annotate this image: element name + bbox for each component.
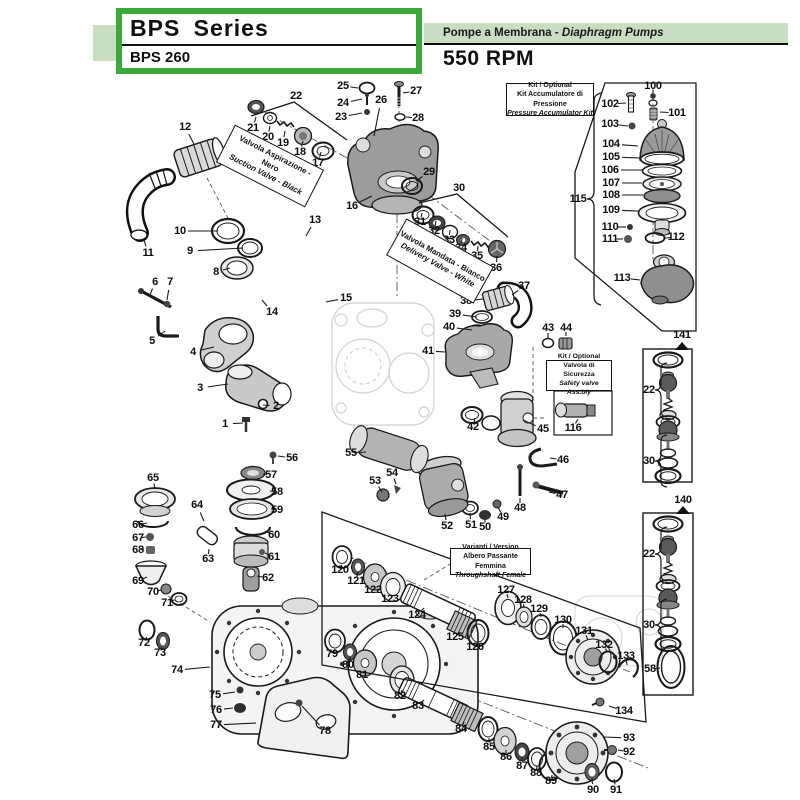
callout-86: 86 xyxy=(500,751,512,763)
callout-43: 43 xyxy=(542,322,554,334)
leader-line-13 xyxy=(306,227,311,236)
leader-line-101 xyxy=(660,112,669,113)
throughshaft-variant-label: Varianti / Version Albero Passante Femmi… xyxy=(450,548,531,575)
leader-line-11 xyxy=(144,240,146,247)
callout-11: 11 xyxy=(142,247,153,259)
callout-102: 102 xyxy=(601,98,618,110)
callout-13: 13 xyxy=(309,214,321,226)
accumulator-kit-line1: Kit / Optional xyxy=(528,81,572,90)
callout-24: 24 xyxy=(337,97,349,109)
callout-47: 47 xyxy=(556,489,568,501)
leader-line-3 xyxy=(208,384,228,387)
callout-100: 100 xyxy=(644,80,661,92)
catalog-page: BPS Series BPS 260 Pompe a Membrana - Di… xyxy=(0,0,800,800)
callout-9: 9 xyxy=(187,245,193,257)
leader-line-75 xyxy=(223,692,235,694)
callout-55: 55 xyxy=(345,447,357,459)
leader-line-9 xyxy=(198,248,243,251)
leader-line-23 xyxy=(349,113,362,116)
callout-126: 126 xyxy=(466,641,483,653)
leader-line-102 xyxy=(618,103,626,104)
callout-116: 116 xyxy=(565,422,582,434)
callout-123: 123 xyxy=(381,593,398,605)
leader-line-104 xyxy=(622,145,638,146)
callout-129: 129 xyxy=(530,603,547,615)
callout-37: 37 xyxy=(518,280,530,292)
callout-28: 28 xyxy=(412,112,424,124)
leader-line-46 xyxy=(550,458,557,459)
callout-53: 53 xyxy=(369,475,381,487)
callout-65: 65 xyxy=(147,472,159,484)
leader-line-45 xyxy=(523,420,536,426)
throughshaft-variant-line3: Throughshaft Female xyxy=(455,571,526,580)
leader-line-4 xyxy=(201,347,214,350)
leader-line-41 xyxy=(436,351,445,352)
callout-68: 68 xyxy=(132,544,144,556)
callout-12: 12 xyxy=(179,121,191,133)
callout-45: 45 xyxy=(537,423,549,435)
callout-67: 67 xyxy=(132,532,144,544)
callout-63: 63 xyxy=(202,553,214,565)
callout-16: 16 xyxy=(346,200,358,212)
callout-93: 93 xyxy=(623,732,635,744)
leader-line-74 xyxy=(185,667,210,669)
leader-line-47 xyxy=(549,492,556,494)
leader-line-15 xyxy=(326,300,338,302)
leader-line-105 xyxy=(622,157,640,158)
callout-22: 22 xyxy=(643,548,655,560)
leader-line-56 xyxy=(278,456,285,457)
leader-line-65 xyxy=(154,484,155,490)
leader-line-25 xyxy=(351,87,359,88)
callout-111: 111 xyxy=(602,233,618,245)
callout-78: 78 xyxy=(319,725,331,737)
callout-107: 107 xyxy=(602,177,619,189)
callout-84: 84 xyxy=(455,723,467,735)
leader-line-2 xyxy=(263,405,270,406)
callout-131: 131 xyxy=(575,625,592,637)
leader-line-113 xyxy=(631,279,640,280)
callout-6: 6 xyxy=(152,276,158,288)
leader-line-12 xyxy=(189,134,194,144)
callout-106: 106 xyxy=(601,164,618,176)
callout-113: 113 xyxy=(614,272,631,284)
callout-8: 8 xyxy=(213,266,219,278)
callout-69: 69 xyxy=(132,575,144,587)
callout-88: 88 xyxy=(530,767,542,779)
callout-58: 58 xyxy=(271,486,283,498)
callout-49: 49 xyxy=(497,511,509,523)
callout-54: 54 xyxy=(386,467,398,479)
leader-line-40 xyxy=(457,328,472,330)
callout-134: 134 xyxy=(615,705,632,717)
callout-50: 50 xyxy=(479,521,491,533)
leader-line-24 xyxy=(351,99,362,101)
callout-133: 133 xyxy=(617,650,634,662)
callout-127: 127 xyxy=(497,584,514,596)
safety-valve-kit-line2: Valvola di Sicurezza xyxy=(547,362,611,380)
leader-line-93 xyxy=(604,737,621,738)
callout-51: 51 xyxy=(465,519,477,531)
safety-valve-kit-line1: Kit / Optional xyxy=(558,353,600,362)
leader-line-55 xyxy=(359,452,367,453)
callout-92: 92 xyxy=(623,746,635,758)
leader-line-76 xyxy=(224,708,233,709)
callout-26: 26 xyxy=(375,94,387,106)
callout-77: 77 xyxy=(210,719,222,731)
callout-130: 130 xyxy=(554,614,571,626)
callout-42: 42 xyxy=(467,421,479,433)
callout-105: 105 xyxy=(602,151,619,163)
callout-140: 140 xyxy=(674,494,691,506)
callout-62: 62 xyxy=(262,572,274,584)
callout-76: 76 xyxy=(210,704,222,716)
throughshaft-variant-line2: Albero Passante Femmina xyxy=(451,552,530,570)
throughshaft-variant-line1: Varianti / Version xyxy=(462,543,518,552)
leader-line-109 xyxy=(622,210,638,211)
callout-22: 22 xyxy=(643,384,655,396)
callout-74: 74 xyxy=(171,664,183,676)
callout-115: 115 xyxy=(570,193,587,205)
safety-valve-kit-label: Kit / Optional Valvola di Sicurezza Safe… xyxy=(546,360,612,391)
callout-89: 89 xyxy=(545,775,557,787)
callout-1: 1 xyxy=(222,418,228,430)
callout-39: 39 xyxy=(449,308,461,320)
callout-124: 124 xyxy=(408,609,425,621)
leader-line-6 xyxy=(150,289,153,296)
accumulator-kit-line2: Kit Accumulatore di Pressione xyxy=(507,90,593,108)
leader-line-5 xyxy=(158,331,165,336)
callout-61: 61 xyxy=(268,551,280,563)
callout-132: 132 xyxy=(595,639,612,651)
callout-103: 103 xyxy=(601,118,618,130)
callout-91: 91 xyxy=(610,784,622,796)
callout-104: 104 xyxy=(602,138,619,150)
leader-line-53 xyxy=(379,487,383,493)
callout-90: 90 xyxy=(587,784,599,796)
callout-30: 30 xyxy=(643,455,655,467)
leader-line-8 xyxy=(223,268,230,270)
leader-line-16 xyxy=(359,196,372,202)
callout-48: 48 xyxy=(514,502,526,514)
callout-80: 80 xyxy=(342,659,354,671)
leader-line-37 xyxy=(512,291,518,296)
callout-72: 72 xyxy=(138,637,150,649)
callout-73: 73 xyxy=(154,647,166,659)
callout-110: 110 xyxy=(602,221,619,233)
leader-line-29 xyxy=(416,177,423,182)
callout-29: 29 xyxy=(423,166,435,178)
callout-23: 23 xyxy=(335,111,347,123)
callout-25: 25 xyxy=(337,80,349,92)
callout-60: 60 xyxy=(268,529,280,541)
callout-79: 79 xyxy=(326,648,338,660)
callout-15: 15 xyxy=(340,292,352,304)
callout-56: 56 xyxy=(286,452,298,464)
callout-2: 2 xyxy=(273,400,279,412)
exploded-diagram: 1234567891011121314151617181920212223242… xyxy=(0,0,800,800)
callout-128: 128 xyxy=(514,594,531,606)
callout-14: 14 xyxy=(266,306,278,318)
leader-line-64 xyxy=(200,512,204,521)
callout-30: 30 xyxy=(453,182,465,194)
callout-83: 83 xyxy=(412,700,424,712)
callout-121: 121 xyxy=(347,575,364,587)
leader-line-54 xyxy=(394,479,396,485)
callout-122: 122 xyxy=(364,584,381,596)
callout-101: 101 xyxy=(668,107,685,119)
accumulator-kit-line3: Pressure Accumulator Kit xyxy=(507,109,593,118)
callout-70: 70 xyxy=(147,586,159,598)
callout-75: 75 xyxy=(209,689,221,701)
callout-141: 141 xyxy=(673,329,690,341)
leader-line-103 xyxy=(619,125,628,126)
callout-52: 52 xyxy=(441,520,453,532)
callout-108: 108 xyxy=(602,189,619,201)
callout-10: 10 xyxy=(174,225,186,237)
callout-40: 40 xyxy=(443,321,455,333)
leader-line-27 xyxy=(403,92,410,93)
callout-120: 120 xyxy=(331,564,348,576)
callout-3: 3 xyxy=(197,382,203,394)
safety-valve-kit-line3: Safety valve Ass.bly xyxy=(547,380,611,398)
leader-line-7 xyxy=(167,290,169,300)
callout-46: 46 xyxy=(557,454,569,466)
leader-lines xyxy=(0,0,800,800)
callout-82: 82 xyxy=(394,690,406,702)
callout-5: 5 xyxy=(149,335,155,347)
callout-4: 4 xyxy=(190,346,196,358)
accumulator-kit-label: Kit / Optional Kit Accumulatore di Press… xyxy=(506,83,594,116)
callout-44: 44 xyxy=(560,322,572,334)
callout-57: 57 xyxy=(265,469,277,481)
leader-line-26 xyxy=(374,108,379,136)
callout-22: 22 xyxy=(290,90,302,102)
callout-112: 112 xyxy=(668,231,685,243)
callout-71: 71 xyxy=(161,597,173,609)
callout-81: 81 xyxy=(356,669,368,681)
callout-30: 30 xyxy=(643,619,655,631)
callout-125: 125 xyxy=(446,631,463,643)
leader-line-28 xyxy=(406,117,412,118)
callout-7: 7 xyxy=(167,276,173,288)
callout-41: 41 xyxy=(422,345,434,357)
leader-line-1 xyxy=(233,423,243,424)
leader-line-78 xyxy=(302,706,320,725)
leader-line-77 xyxy=(224,723,256,725)
leader-line-39 xyxy=(463,315,477,317)
callout-87: 87 xyxy=(516,760,528,772)
callout-85: 85 xyxy=(483,741,495,753)
callout-59: 59 xyxy=(271,504,283,516)
callout-64: 64 xyxy=(191,499,203,511)
callout-109: 109 xyxy=(602,204,619,216)
callout-27: 27 xyxy=(410,85,422,97)
callout-66: 66 xyxy=(132,519,144,531)
callout-58: 58 xyxy=(644,663,656,675)
